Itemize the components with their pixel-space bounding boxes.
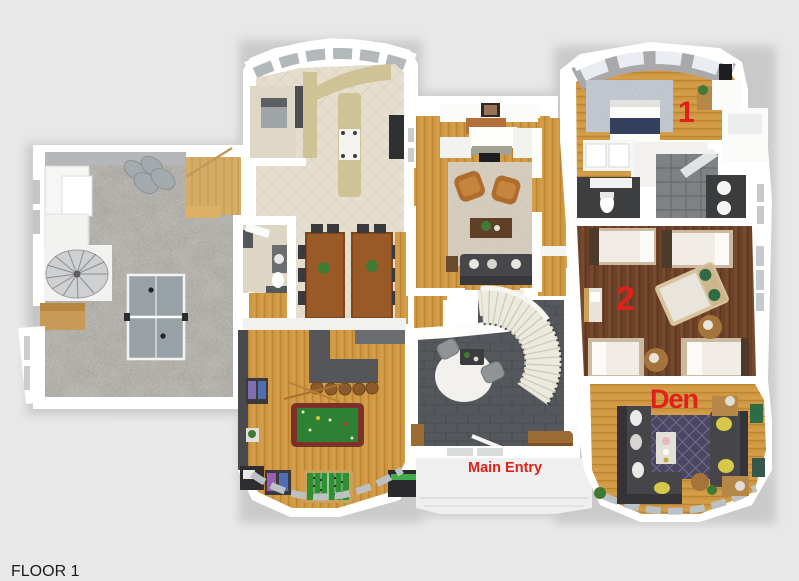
svg-text:2: 2 [616, 280, 635, 318]
svg-text:Den: Den [650, 384, 698, 414]
svg-text:1: 1 [678, 96, 695, 129]
svg-text:FLOOR 1: FLOOR 1 [11, 563, 80, 580]
svg-text:Main Entry: Main Entry [468, 460, 542, 476]
